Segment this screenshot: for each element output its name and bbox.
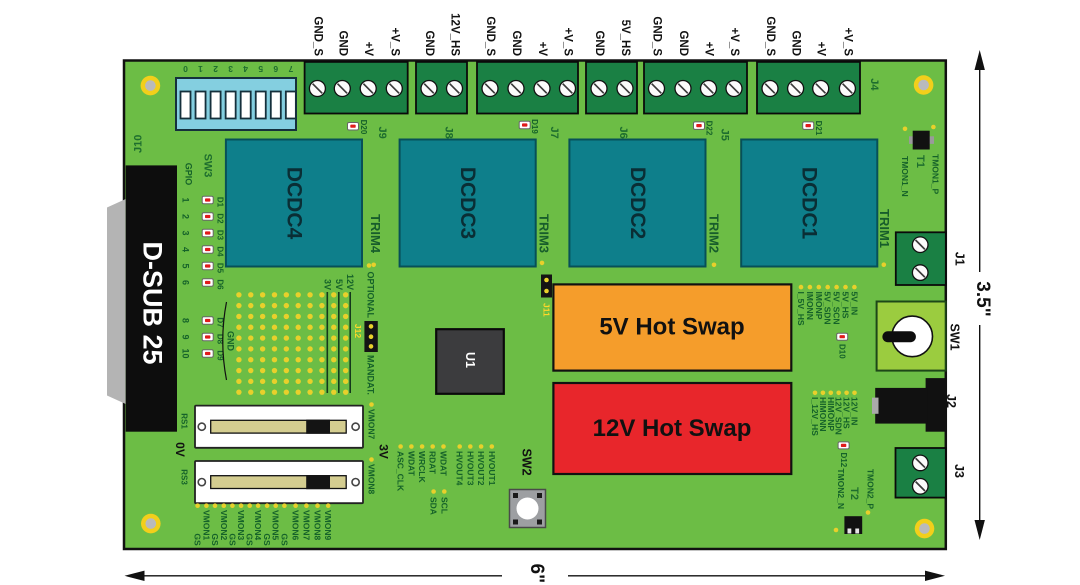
svg-text:VMON7: VMON7 [367,409,377,440]
svg-text:+V: +V [536,42,548,57]
svg-text:VMON3: VMON3 [236,510,246,541]
svg-text:3V: 3V [322,279,332,290]
svg-text:D19: D19 [530,119,539,134]
svg-text:HVOUT3: HVOUT3 [465,451,475,486]
svg-text:SCL: SCL [439,497,449,514]
svg-text:6: 6 [273,64,278,74]
svg-text:5V_IN: 5V_IN [849,292,859,316]
svg-text:D2: D2 [216,213,225,224]
svg-text:GND: GND [593,30,605,56]
svg-text:12V_IN: 12V_IN [850,397,860,425]
svg-text:4: 4 [243,64,248,74]
svg-text:RDAT: RDAT [428,451,438,475]
svg-text:J1: J1 [953,252,967,266]
svg-text:J2: J2 [944,394,958,408]
svg-text:GND_S: GND_S [311,16,323,56]
svg-text:GS: GS [262,533,272,546]
svg-text:J3: J3 [952,464,966,478]
svg-text:2: 2 [213,64,218,74]
svg-text:TMON2_P: TMON2_P [865,469,875,509]
svg-text:HVOUT1: HVOUT1 [487,451,497,486]
svg-text:SW2: SW2 [520,448,534,475]
svg-text:HVOUT2: HVOUT2 [476,451,486,486]
svg-text:IMONP: IMONP [814,292,824,320]
svg-text:GPIO: GPIO [184,163,194,186]
svg-text:IMONN: IMONN [805,292,815,320]
svg-text:GS: GS [279,533,289,546]
svg-text:MANDAT.: MANDAT. [366,355,376,395]
svg-text:D20: D20 [359,120,368,135]
svg-text:5V_HS: 5V_HS [619,20,631,57]
svg-text:VMON2: VMON2 [219,510,229,541]
svg-text:12V_HS: 12V_HS [449,13,461,56]
svg-text:U1: U1 [463,352,477,368]
svg-text:J4: J4 [868,78,880,91]
svg-text:DCDC2: DCDC2 [626,167,649,239]
svg-text:5V: 5V [334,279,344,290]
svg-text:OPTIONAL: OPTIONAL [366,272,376,319]
svg-text:0: 0 [183,64,188,74]
svg-text:WRCLK: WRCLK [417,451,427,483]
svg-text:1: 1 [181,197,191,202]
svg-text:ASC_CLK: ASC_CLK [396,451,406,492]
svg-text:3V: 3V [376,444,390,459]
svg-text:TRIM2: TRIM2 [706,214,721,253]
svg-text:VMON6: VMON6 [291,510,301,541]
svg-text:+V: +V [703,42,715,57]
svg-text:D12: D12 [839,453,848,468]
svg-text:GND: GND [790,30,802,56]
svg-text:RS3: RS3 [180,469,189,485]
svg-text:GND: GND [510,30,522,56]
svg-text:3: 3 [181,230,191,235]
svg-text:GND_S: GND_S [484,16,496,56]
svg-text:8: 8 [181,318,191,323]
svg-text:GND: GND [226,331,236,352]
svg-text:J8: J8 [443,126,455,138]
svg-text:10: 10 [181,348,191,358]
svg-text:D1: D1 [216,197,225,208]
svg-text:TRIM1: TRIM1 [877,209,892,248]
svg-text:2: 2 [181,214,191,219]
svg-text:VMON8: VMON8 [313,510,323,541]
svg-text:7: 7 [288,64,293,74]
svg-text:5V_HS: 5V_HS [841,292,851,319]
svg-text:VMON9: VMON9 [323,510,333,541]
svg-text:DCDC1: DCDC1 [798,167,821,240]
svg-text:D4: D4 [216,246,225,257]
svg-text:I_5V_HS: I_5V_HS [796,292,806,326]
svg-text:D3: D3 [216,230,225,241]
svg-text:DCDC3: DCDC3 [456,167,479,239]
svg-text:J6: J6 [617,126,629,138]
svg-text:GS: GS [193,533,203,546]
svg-text:T1: T1 [914,155,926,168]
svg-text:GND: GND [677,30,689,56]
svg-text:1: 1 [198,64,203,74]
svg-text:5V_SCN: 5V_SCN [832,292,842,325]
svg-text:6": 6" [526,564,547,584]
svg-text:0V: 0V [173,442,187,457]
svg-text:TRIM3: TRIM3 [537,214,552,253]
svg-text:D6: D6 [216,279,225,290]
svg-text:VMON1: VMON1 [201,510,211,541]
svg-text:J5: J5 [718,129,730,141]
svg-text:VMON5: VMON5 [271,510,281,541]
svg-text:WDAT: WDAT [406,451,416,477]
svg-text:D-SUB 25: D-SUB 25 [138,241,168,364]
svg-text:3.5": 3.5" [972,281,993,316]
svg-text:VMON7: VMON7 [301,510,311,541]
svg-text:+V: +V [362,42,374,57]
svg-text:D21: D21 [814,121,823,136]
svg-text:VMON8: VMON8 [367,464,377,495]
svg-text:SW1: SW1 [948,323,962,350]
svg-text:RS1: RS1 [180,413,189,429]
svg-text:12V Hot Swap: 12V Hot Swap [593,415,752,442]
svg-text:+V_S: +V_S [562,28,574,57]
svg-text:J10: J10 [133,135,145,153]
svg-text:9: 9 [181,334,191,339]
svg-text:+V_S: +V_S [728,28,740,57]
svg-text:SDA: SDA [429,497,439,515]
svg-text:J7: J7 [548,126,560,138]
svg-text:J9: J9 [376,126,388,138]
svg-text:GND_S: GND_S [764,16,776,56]
svg-text:VMON4: VMON4 [253,510,263,541]
svg-text:GND_S: GND_S [651,16,663,56]
svg-text:5: 5 [181,263,191,268]
svg-text:TMON2_N: TMON2_N [836,468,846,509]
svg-text:3: 3 [228,64,233,74]
svg-text:TMON1_P: TMON1_P [930,154,940,194]
svg-text:4: 4 [181,247,191,252]
svg-text:SW3: SW3 [202,154,214,178]
svg-text:GS: GS [210,533,220,546]
svg-text:GS: GS [227,533,237,546]
svg-text:5V Hot Swap: 5V Hot Swap [599,313,744,340]
svg-text:J11: J11 [542,303,552,317]
svg-text:D22: D22 [705,121,714,136]
svg-text:GND: GND [423,30,435,56]
svg-text:+V: +V [815,42,827,57]
svg-text:D5: D5 [216,263,225,274]
svg-text:DCDC4: DCDC4 [282,167,305,240]
svg-text:5V_SDN: 5V_SDN [823,292,833,325]
svg-text:GND: GND [336,30,348,56]
svg-text:WDAT: WDAT [439,451,449,477]
svg-text:T2: T2 [848,487,860,500]
svg-text:5: 5 [258,64,263,74]
svg-text:HVOUT4: HVOUT4 [455,451,465,486]
svg-text:6: 6 [181,280,191,285]
svg-text:TRIM4: TRIM4 [368,214,383,254]
svg-text:+V_S: +V_S [388,28,400,57]
svg-text:+V_S: +V_S [841,28,853,57]
svg-text:12V: 12V [345,274,355,290]
svg-text:TMON1_N: TMON1_N [900,156,910,197]
svg-text:J12: J12 [353,324,363,338]
svg-text:D10: D10 [838,344,847,359]
